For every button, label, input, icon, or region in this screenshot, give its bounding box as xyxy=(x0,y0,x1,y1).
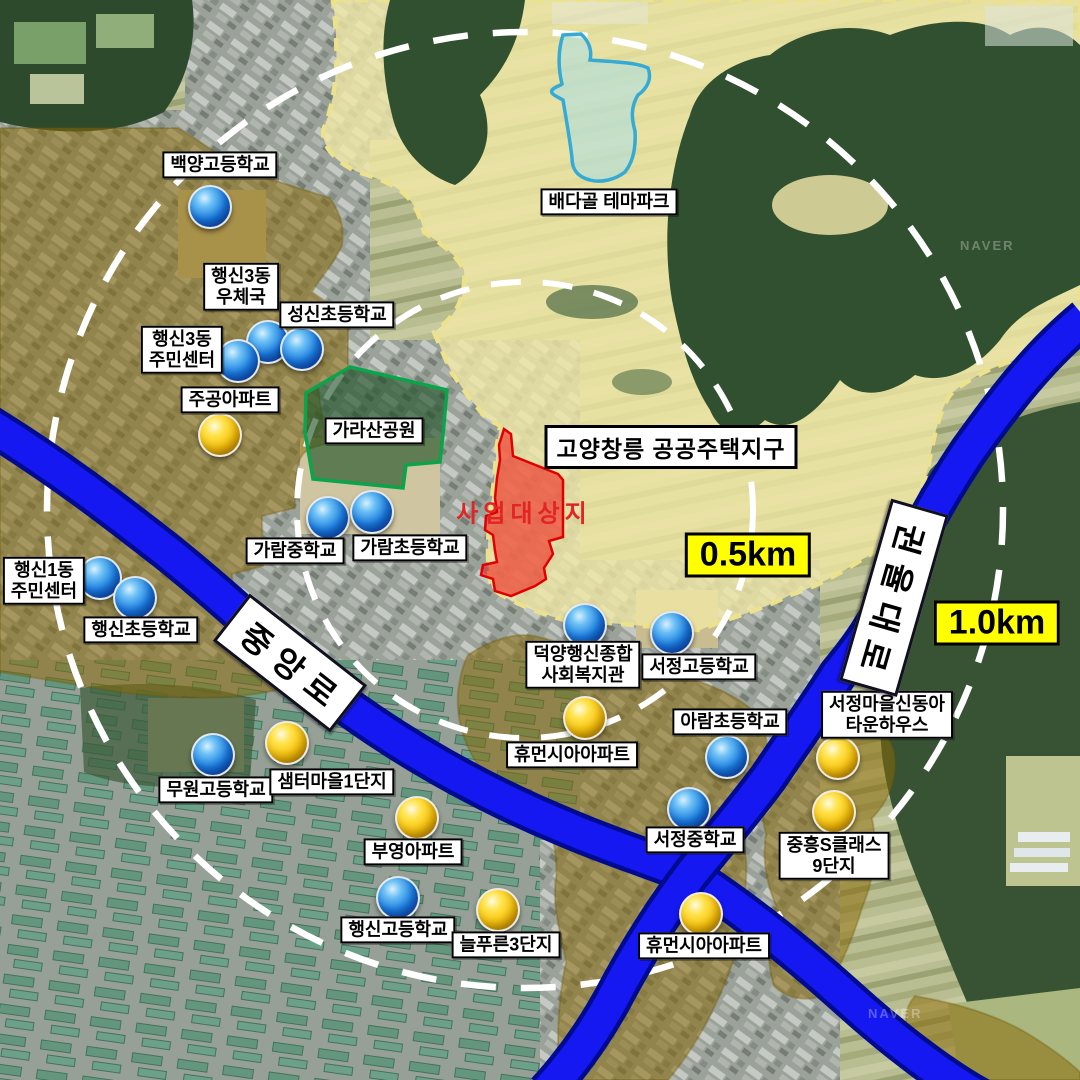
radius-label-10km: 1.0km xyxy=(934,601,1060,646)
watermark: NAVER xyxy=(960,238,1015,253)
annotation-layer: 배다골 테마파크 가라산공원 고양창릉 공공주택지구 사업대상지 0.5km 1… xyxy=(0,0,1080,1080)
watermark: NAVER xyxy=(868,1006,923,1021)
road-label-gwonyul-daero: 권율대로 xyxy=(839,499,949,698)
project-site-label: 사업대상지 xyxy=(456,494,591,529)
radius-label-05km: 0.5km xyxy=(685,533,811,578)
road-label-jungang-ro: 중앙로 xyxy=(213,593,367,732)
area-label-garasan-park: 가라산공원 xyxy=(325,417,424,444)
area-label-themepark: 배다골 테마파크 xyxy=(541,188,678,215)
district-title-label: 고양창릉 공공주택지구 xyxy=(545,425,798,469)
satellite-map: 백양고등학교행신3동우체국성신초등학교행신3동주민센터주공아파트가람중학교가람초… xyxy=(0,0,1080,1080)
